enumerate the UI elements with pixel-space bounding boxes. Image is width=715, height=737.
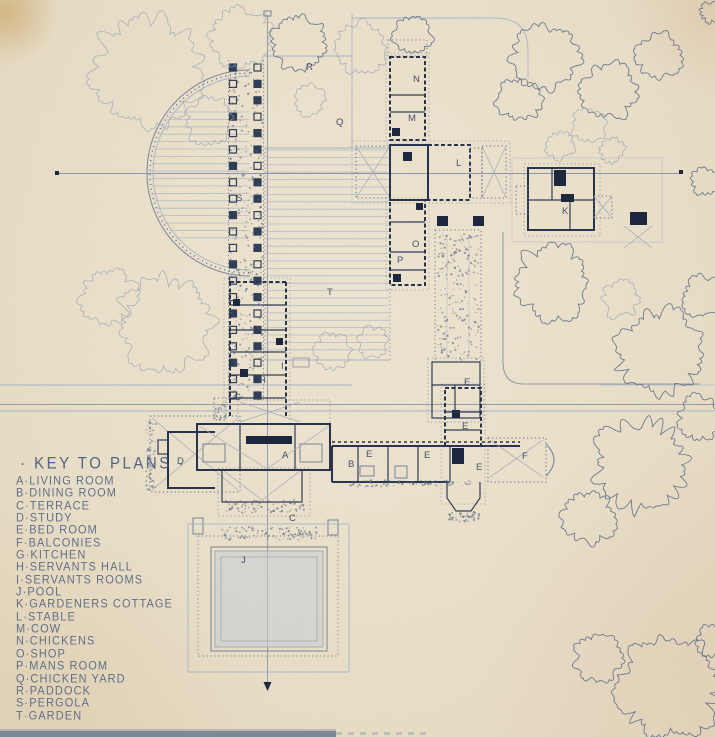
key-item: K·GARDENERS COTTAGE — [16, 598, 196, 611]
key-item: N·CHICKENS — [16, 635, 196, 648]
key-title: · KEY TO PLANS · — [20, 454, 196, 472]
key-item: R·PADDOCK — [16, 685, 196, 698]
key-item: P·MANS ROOM — [16, 660, 196, 673]
key-item: C·TERRACE — [16, 500, 196, 513]
key-item: I·SERVANTS ROOMS — [16, 574, 196, 587]
key-item: B·DINING ROOM — [16, 487, 196, 500]
bottom-border-band — [0, 731, 336, 737]
key-item: H·SERVANTS HALL — [16, 561, 196, 574]
key-block: · KEY TO PLANS · A·LIVING ROOMB·DINING R… — [16, 455, 196, 722]
key-item: O·SHOP — [16, 648, 196, 661]
key-item: F·BALCONIES — [16, 537, 196, 550]
key-item: E·BED ROOM — [16, 524, 196, 537]
key-item: L·STABLE — [16, 611, 196, 624]
bottom-border-band-faint — [336, 732, 426, 735]
key-item: Q·CHICKEN YARD — [16, 673, 196, 686]
drawing-sheet: ABCDEEEEEFGHIJKLMNOPQRST · KEY TO PLANS … — [0, 0, 715, 737]
key-item: S·PERGOLA — [16, 697, 196, 710]
key-list: A·LIVING ROOMB·DINING ROOMC·TERRACED·STU… — [16, 475, 196, 722]
key-item: T·GARDEN — [16, 710, 196, 723]
